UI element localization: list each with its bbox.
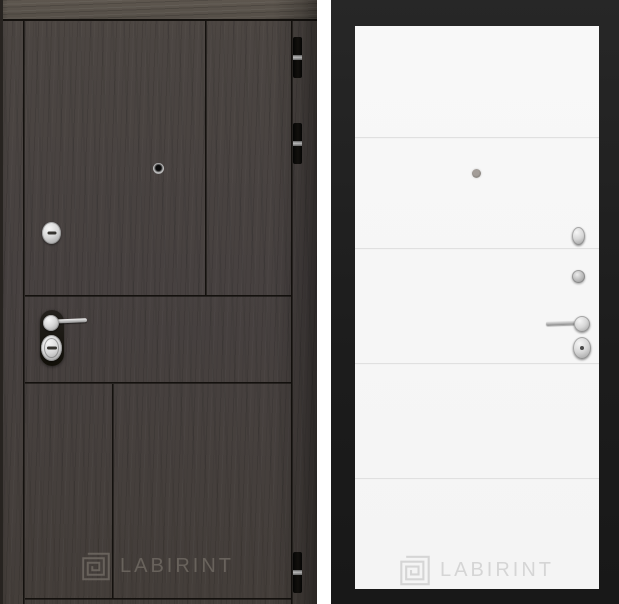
hinge-icon [293,552,302,593]
hinge-pin [293,570,302,575]
leaf-edge-groove [291,21,293,604]
key-escutcheon-icon [573,337,591,359]
escutcheon-icon [572,227,585,245]
white-door-leaf: LABIRINT [355,26,599,589]
upper-vertical-groove [205,21,207,295]
brand-logo: LABIRINT [355,548,599,592]
labyrinth-logo-icon [82,551,110,582]
peephole-icon [153,163,164,174]
lower-vertical-groove [112,384,114,598]
horizontal-groove-1 [355,137,599,139]
horizontal-groove-2 [25,382,291,384]
hinge-pin [293,55,302,60]
hinge-pin [293,141,302,146]
lever-handle-icon [48,318,87,324]
labyrinth-logo-icon [400,554,430,587]
brand-logo: LABIRINT [25,546,291,586]
thumb-turn-knob-icon [572,270,585,283]
door-interior-white-panel[interactable]: LABIRINT [331,0,619,604]
keyhole-slot [47,232,56,235]
hinge-icon [293,123,302,164]
horizontal-groove-3 [355,363,599,365]
keyhole-dot [580,346,584,350]
handle-rosette [574,316,590,332]
horizontal-groove-4 [355,478,599,480]
horizontal-groove-2 [355,248,599,250]
horizontal-groove-1 [25,295,291,297]
horizontal-groove-3 [25,598,291,600]
cylinder-cover-icon [42,222,61,244]
door-left-edge [0,0,3,604]
brand-logo-text: LABIRINT [440,560,554,580]
door-top-frame [0,0,317,21]
handle-rosette [43,315,59,331]
door-exterior-dark-panel[interactable]: LABIRINT [0,0,317,604]
key-cylinder-icon [41,335,62,361]
peephole-icon [472,169,481,178]
product-image-door-views: LABIRINT LABIRINT [0,0,619,604]
cylinder-ring [44,338,59,358]
hinge-icon [293,37,302,78]
keyhole-slot [47,347,57,350]
casing-groove [23,21,25,604]
handle-backplate [40,310,64,366]
brand-logo-text: LABIRINT [120,556,234,576]
